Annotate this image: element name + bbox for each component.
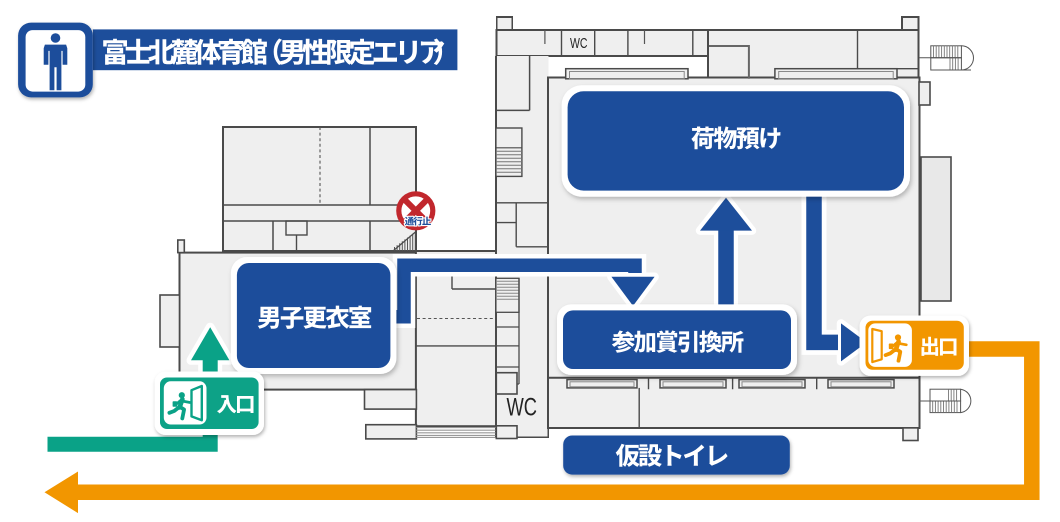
svg-text:WC: WC bbox=[570, 36, 588, 52]
svg-text:WC: WC bbox=[507, 394, 538, 422]
